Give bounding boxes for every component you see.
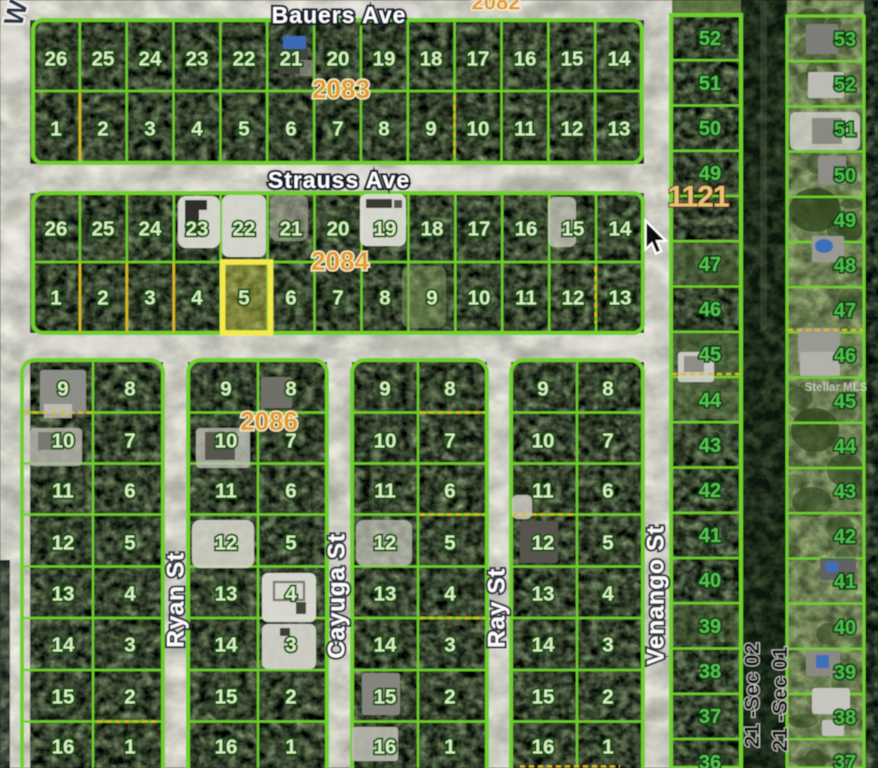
svg-text:42: 42: [834, 526, 856, 548]
svg-text:10: 10: [467, 118, 490, 141]
svg-text:5: 5: [124, 532, 135, 555]
svg-text:17: 17: [468, 218, 491, 241]
svg-text:52: 52: [834, 74, 856, 96]
svg-text:12: 12: [52, 532, 75, 555]
svg-text:2: 2: [602, 686, 613, 709]
svg-text:13: 13: [532, 583, 555, 606]
svg-text:6: 6: [285, 118, 296, 141]
svg-text:20: 20: [327, 218, 350, 241]
svg-text:25: 25: [92, 218, 115, 241]
svg-text:3: 3: [124, 634, 135, 657]
svg-text:2: 2: [285, 686, 296, 709]
svg-text:Ray St: Ray St: [484, 568, 511, 648]
svg-text:2: 2: [124, 686, 135, 709]
svg-text:16: 16: [532, 736, 555, 759]
svg-text:16: 16: [52, 736, 75, 759]
svg-text:12: 12: [374, 532, 397, 555]
svg-text:47: 47: [699, 254, 721, 276]
svg-text:40: 40: [699, 570, 721, 592]
svg-text:18: 18: [420, 48, 443, 71]
svg-text:21: 21: [280, 48, 303, 71]
svg-text:40: 40: [834, 617, 856, 639]
svg-text:21: 21: [280, 218, 303, 241]
svg-text:Venango St: Venango St: [643, 525, 670, 664]
svg-text:39: 39: [699, 616, 721, 638]
svg-text:38: 38: [699, 661, 721, 683]
svg-text:2: 2: [97, 118, 108, 141]
svg-text:13: 13: [52, 583, 75, 606]
svg-text:1121: 1121: [667, 181, 728, 214]
svg-text:3: 3: [144, 118, 155, 141]
svg-text:50: 50: [699, 118, 721, 140]
svg-text:9: 9: [57, 378, 68, 401]
svg-text:3: 3: [144, 287, 155, 310]
svg-text:14: 14: [608, 48, 631, 71]
svg-text:1: 1: [285, 736, 296, 759]
svg-text:7: 7: [444, 430, 455, 453]
svg-text:20: 20: [327, 48, 350, 71]
svg-text:9: 9: [426, 287, 437, 310]
svg-text:13: 13: [374, 583, 397, 606]
svg-text:14: 14: [532, 634, 555, 657]
svg-text:4: 4: [444, 583, 456, 606]
svg-text:2082: 2082: [472, 0, 521, 15]
svg-text:5: 5: [444, 532, 455, 555]
svg-text:45: 45: [834, 391, 856, 413]
svg-text:6: 6: [602, 480, 613, 503]
svg-text:6: 6: [285, 480, 296, 503]
svg-text:17: 17: [467, 48, 490, 71]
svg-text:44: 44: [834, 436, 857, 458]
svg-text:8: 8: [602, 378, 613, 401]
svg-text:7: 7: [602, 430, 613, 453]
svg-text:8: 8: [285, 378, 296, 401]
svg-text:4: 4: [191, 287, 203, 310]
svg-text:7: 7: [332, 118, 343, 141]
svg-text:11: 11: [514, 118, 536, 141]
svg-text:11: 11: [52, 480, 74, 503]
svg-text:11: 11: [515, 287, 537, 310]
svg-text:15: 15: [215, 686, 238, 709]
svg-text:Stellar MLS: Stellar MLS: [805, 382, 868, 394]
svg-text:45: 45: [699, 344, 721, 366]
svg-text:21 -Sec 01: 21 -Sec 01: [768, 646, 792, 751]
svg-text:21 -Sec 02: 21 -Sec 02: [740, 642, 764, 747]
svg-text:Strauss Ave: Strauss Ave: [268, 167, 410, 193]
svg-text:11: 11: [374, 480, 396, 503]
svg-text:6: 6: [285, 287, 296, 310]
svg-text:24: 24: [139, 218, 162, 241]
svg-text:Ryan St: Ryan St: [163, 552, 190, 647]
svg-text:12: 12: [562, 287, 585, 310]
svg-text:15: 15: [532, 686, 555, 709]
svg-text:8: 8: [444, 378, 455, 401]
svg-text:2083: 2083: [312, 74, 370, 104]
svg-text:15: 15: [562, 218, 585, 241]
svg-text:1: 1: [50, 287, 61, 310]
svg-text:14: 14: [52, 634, 75, 657]
svg-text:51: 51: [699, 73, 721, 95]
svg-text:26: 26: [45, 48, 68, 71]
svg-text:25: 25: [92, 48, 115, 71]
svg-text:18: 18: [421, 218, 444, 241]
svg-text:5: 5: [602, 532, 613, 555]
svg-text:9: 9: [425, 118, 436, 141]
svg-text:12: 12: [215, 532, 238, 555]
svg-text:4: 4: [124, 583, 136, 606]
svg-text:53: 53: [834, 29, 856, 51]
svg-text:43: 43: [834, 481, 856, 503]
svg-text:2: 2: [444, 686, 455, 709]
svg-text:10: 10: [374, 430, 397, 453]
svg-text:37: 37: [699, 706, 721, 728]
svg-text:52: 52: [699, 28, 721, 50]
svg-text:41: 41: [699, 525, 721, 547]
svg-text:47: 47: [834, 300, 856, 322]
svg-text:50: 50: [834, 165, 856, 187]
svg-text:4: 4: [602, 583, 614, 606]
svg-text:22: 22: [233, 218, 256, 241]
svg-text:5: 5: [285, 532, 296, 555]
svg-text:36: 36: [699, 752, 721, 768]
svg-text:5: 5: [238, 287, 249, 310]
svg-text:48: 48: [834, 255, 856, 277]
svg-text:3: 3: [285, 634, 296, 657]
svg-text:4: 4: [285, 583, 297, 606]
svg-text:14: 14: [374, 634, 397, 657]
svg-text:51: 51: [834, 119, 856, 141]
svg-text:7: 7: [124, 430, 135, 453]
svg-text:Bauers Ave: Bauers Ave: [272, 2, 407, 28]
svg-text:23: 23: [186, 48, 209, 71]
svg-text:16: 16: [514, 48, 537, 71]
svg-text:49: 49: [834, 210, 856, 232]
svg-text:19: 19: [374, 218, 397, 241]
svg-text:22: 22: [233, 48, 256, 71]
svg-text:10: 10: [215, 430, 238, 453]
svg-text:5: 5: [238, 118, 249, 141]
svg-text:37: 37: [834, 752, 856, 768]
svg-text:15: 15: [374, 686, 397, 709]
svg-text:39: 39: [834, 662, 856, 684]
svg-text:8: 8: [378, 118, 389, 141]
svg-text:46: 46: [834, 345, 856, 367]
svg-text:11: 11: [532, 480, 554, 503]
svg-text:19: 19: [373, 48, 396, 71]
svg-text:15: 15: [561, 48, 584, 71]
svg-text:11: 11: [215, 480, 237, 503]
svg-text:42: 42: [699, 480, 721, 502]
svg-text:1: 1: [124, 736, 135, 759]
svg-text:1: 1: [602, 736, 613, 759]
svg-text:6: 6: [444, 480, 455, 503]
svg-text:26: 26: [45, 218, 68, 241]
svg-text:4: 4: [191, 118, 203, 141]
svg-text:10: 10: [468, 287, 491, 310]
svg-text:1: 1: [50, 118, 61, 141]
svg-text:9: 9: [379, 378, 390, 401]
svg-text:38: 38: [834, 707, 856, 729]
svg-text:41: 41: [834, 571, 856, 593]
svg-text:14: 14: [215, 634, 238, 657]
svg-text:2086: 2086: [240, 406, 298, 436]
svg-text:16: 16: [374, 736, 397, 759]
svg-text:2: 2: [97, 287, 108, 310]
svg-text:43: 43: [699, 435, 721, 457]
svg-text:8: 8: [379, 287, 390, 310]
svg-text:Cayuga St: Cayuga St: [324, 533, 351, 658]
svg-text:12: 12: [561, 118, 584, 141]
svg-text:16: 16: [515, 218, 538, 241]
svg-text:13: 13: [608, 118, 631, 141]
svg-text:10: 10: [52, 430, 75, 453]
svg-text:13: 13: [215, 583, 238, 606]
svg-text:8: 8: [124, 378, 135, 401]
svg-text:23: 23: [186, 218, 209, 241]
svg-text:9: 9: [220, 378, 231, 401]
svg-text:10: 10: [532, 430, 555, 453]
svg-text:46: 46: [699, 299, 721, 321]
svg-text:44: 44: [699, 390, 722, 412]
svg-text:9: 9: [537, 378, 548, 401]
svg-text:3: 3: [602, 634, 613, 657]
svg-text:14: 14: [609, 218, 632, 241]
svg-text:24: 24: [139, 48, 162, 71]
svg-text:1: 1: [444, 736, 455, 759]
svg-text:12: 12: [532, 532, 555, 555]
svg-text:15: 15: [52, 686, 75, 709]
svg-text:3: 3: [444, 634, 455, 657]
svg-text:16: 16: [215, 736, 238, 759]
svg-text:6: 6: [124, 480, 135, 503]
svg-text:7: 7: [332, 287, 343, 310]
svg-text:2084: 2084: [311, 246, 369, 276]
svg-text:13: 13: [609, 287, 632, 310]
